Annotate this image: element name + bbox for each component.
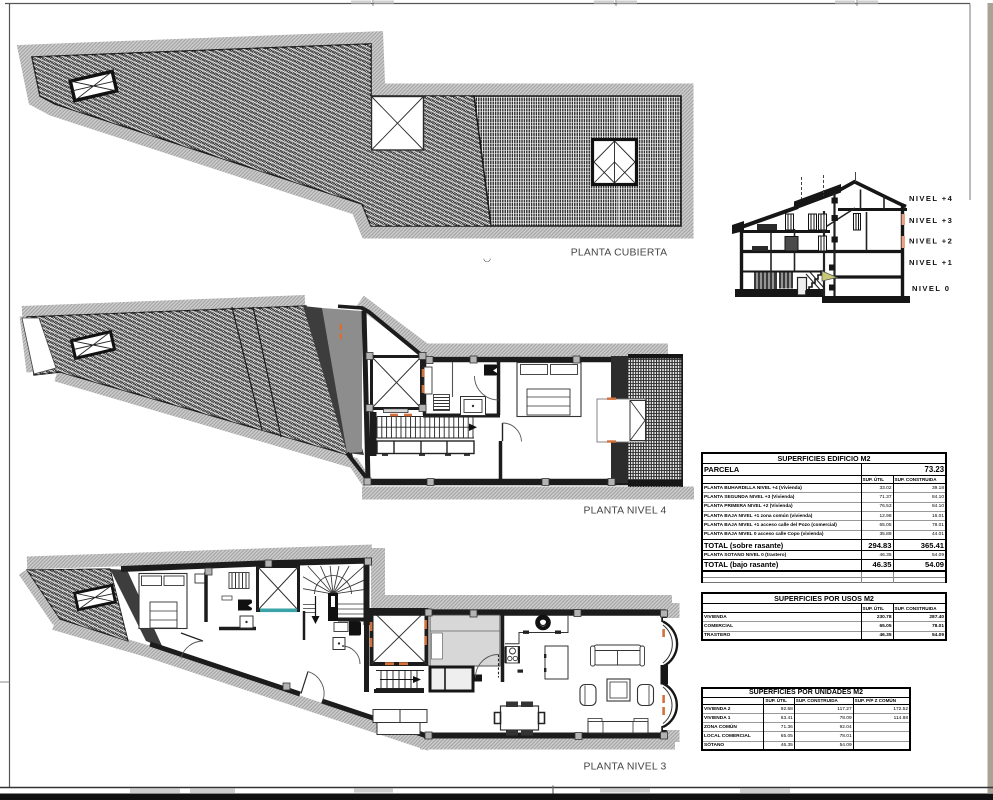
svg-text:◡: ◡: [483, 253, 491, 263]
svg-text:PLANTA NIVEL 4: PLANTA NIVEL 4: [583, 506, 666, 517]
svg-text:NIVEL +4: NIVEL +4: [909, 194, 953, 203]
svg-text:PLANTA NIVEL 3: PLANTA NIVEL 3: [583, 762, 666, 773]
svg-text:PLANTA CUBIERTA: PLANTA CUBIERTA: [571, 248, 668, 259]
svg-text:NIVEL 0: NIVEL 0: [912, 284, 950, 293]
svg-text:NIVEL +1: NIVEL +1: [909, 258, 953, 267]
svg-text:NIVEL +3: NIVEL +3: [909, 216, 953, 225]
svg-text:NIVEL +2: NIVEL +2: [909, 237, 953, 246]
